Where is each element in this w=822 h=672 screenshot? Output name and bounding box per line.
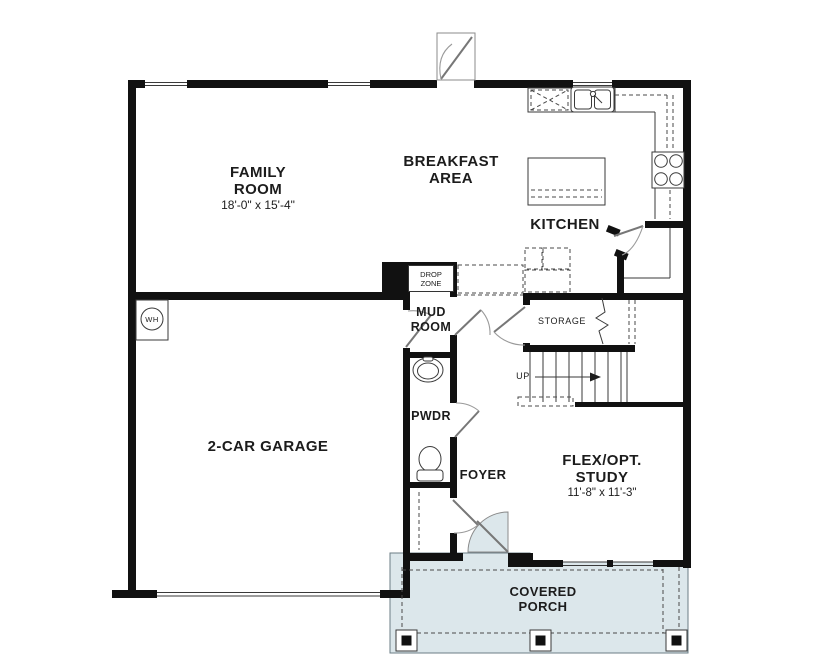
stove-icon (652, 152, 684, 188)
toilet-icon (417, 447, 443, 482)
pantry-door-icon (606, 225, 670, 278)
room-label-porch: COVERED PORCH (509, 584, 576, 614)
room-label-storage: STORAGE (538, 316, 586, 326)
sink-icon (571, 87, 614, 112)
stairs (518, 352, 627, 406)
room-label-pwdr: PWDR (411, 409, 451, 424)
back-door-icon (437, 33, 475, 80)
water-heater-label: WH (145, 315, 159, 324)
storage-door-icon (494, 307, 525, 345)
drop-zone-box: DROP ZONE (408, 265, 454, 292)
room-label-foyer: FOYER (460, 467, 507, 482)
room-label-kitchen: KITCHEN (530, 216, 599, 233)
kitchen-island (528, 158, 605, 205)
opt-cabinet-dashed (458, 248, 570, 293)
pwdr-door-icon (455, 403, 479, 437)
room-label-garage: 2-CAR GARAGE (208, 438, 329, 455)
dishwasher-icon (531, 90, 568, 110)
stairs-up-label: UP (516, 371, 530, 381)
room-dims-family: 18'-0" x 15'-4" (221, 198, 295, 213)
room-label-dropzone: DROP ZONE (420, 270, 442, 288)
room-label-mudroom: MUD ROOM (411, 305, 452, 334)
room-label-breakfast: BREAKFAST AREA (403, 153, 498, 187)
front-door-icon (468, 512, 508, 552)
room-dims-study: 11'-8" x 11'-3" (562, 486, 641, 500)
break-line-icon (596, 298, 635, 344)
hall-door-icon (455, 310, 490, 335)
garage-door-icon (157, 593, 380, 597)
linework-layer (0, 0, 822, 672)
room-label-study: FLEX/OPT. STUDY 11'-8" x 11'-3" (562, 452, 641, 500)
floor-plan: FAMILY ROOM 18'-0" x 15'-4" BREAKFAST AR… (0, 0, 822, 672)
room-label-family: FAMILY ROOM 18'-0" x 15'-4" (221, 164, 295, 213)
pwdr-sink-icon (413, 357, 443, 382)
